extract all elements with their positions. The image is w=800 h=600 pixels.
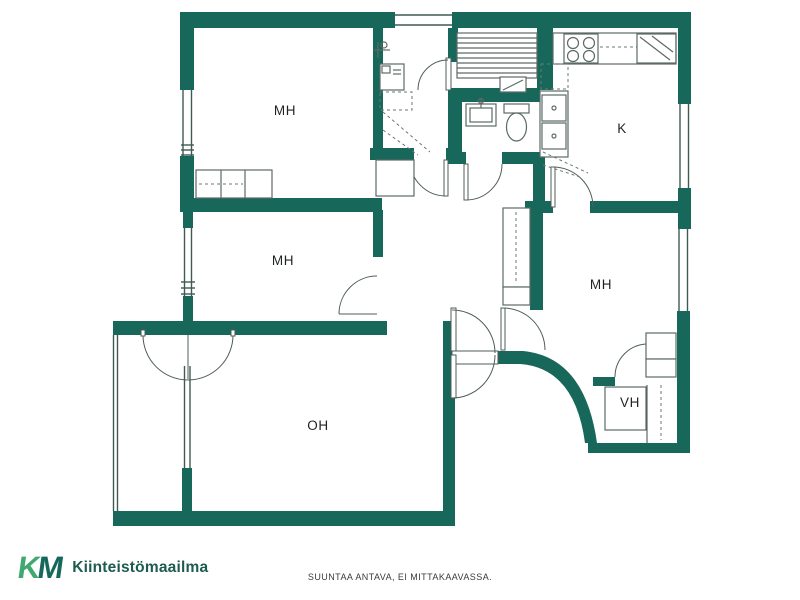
sauna-door xyxy=(418,58,451,90)
kitchen-counter xyxy=(553,33,676,64)
window-bedroom-right xyxy=(679,229,688,311)
bedroom-right-door xyxy=(501,308,545,350)
logo-letter-m: M xyxy=(35,550,63,585)
curved-hall-wall xyxy=(520,351,597,443)
km-logo-mark: KM xyxy=(16,552,64,583)
wardrobe-top-left xyxy=(196,170,272,198)
washing-machine-icon xyxy=(380,64,404,90)
logo-company-name: Kiinteistömaailma xyxy=(72,559,208,577)
window-left-mid xyxy=(181,228,195,296)
room-label-living-room: OH xyxy=(307,418,328,433)
room-label-bedroom-right: MH xyxy=(590,277,612,292)
wc-sink-icon xyxy=(466,98,496,126)
room-label-bedroom-top-left: MH xyxy=(274,103,296,118)
wardrobe-bedroom-right xyxy=(646,333,676,443)
window-top-bathroom xyxy=(395,12,452,28)
footer: KM Kiinteistömaailma SUUNTAA ANTAVA, EI … xyxy=(0,548,800,600)
sauna-stove-icon xyxy=(500,77,526,92)
living-room-door xyxy=(451,308,498,398)
bedroom-mid-door xyxy=(339,276,377,314)
kitchen-door xyxy=(551,167,593,207)
doors xyxy=(141,58,648,398)
bathroom-counter-dashed xyxy=(380,92,430,155)
hall-closet-small xyxy=(376,160,414,196)
km-logo: KM Kiinteistömaailma xyxy=(18,552,208,583)
room-label-bedroom-mid-left: MH xyxy=(272,253,294,268)
window-kitchen-right xyxy=(680,104,689,188)
balcony-double-door xyxy=(141,330,235,380)
room-label-kitchen: K xyxy=(617,121,627,136)
disclaimer-text: SUUNTAA ANTAVA, EI MITTAKAAVASSA. xyxy=(308,572,492,582)
sauna-benches xyxy=(457,33,537,78)
room-label-walk-in-closet: VH xyxy=(620,395,640,410)
bathroom-door xyxy=(410,160,448,196)
window-left-upper xyxy=(181,90,194,156)
floorplan-page: MH MH K MH OH VH KM Kiinteistömaailma SU… xyxy=(0,0,800,600)
closet-door xyxy=(615,344,648,377)
wc-door xyxy=(464,164,502,200)
hall-closet-tall xyxy=(503,208,530,305)
floor-plan-drawing: MH MH K MH OH VH xyxy=(0,0,800,548)
toilet-icon xyxy=(504,104,529,141)
